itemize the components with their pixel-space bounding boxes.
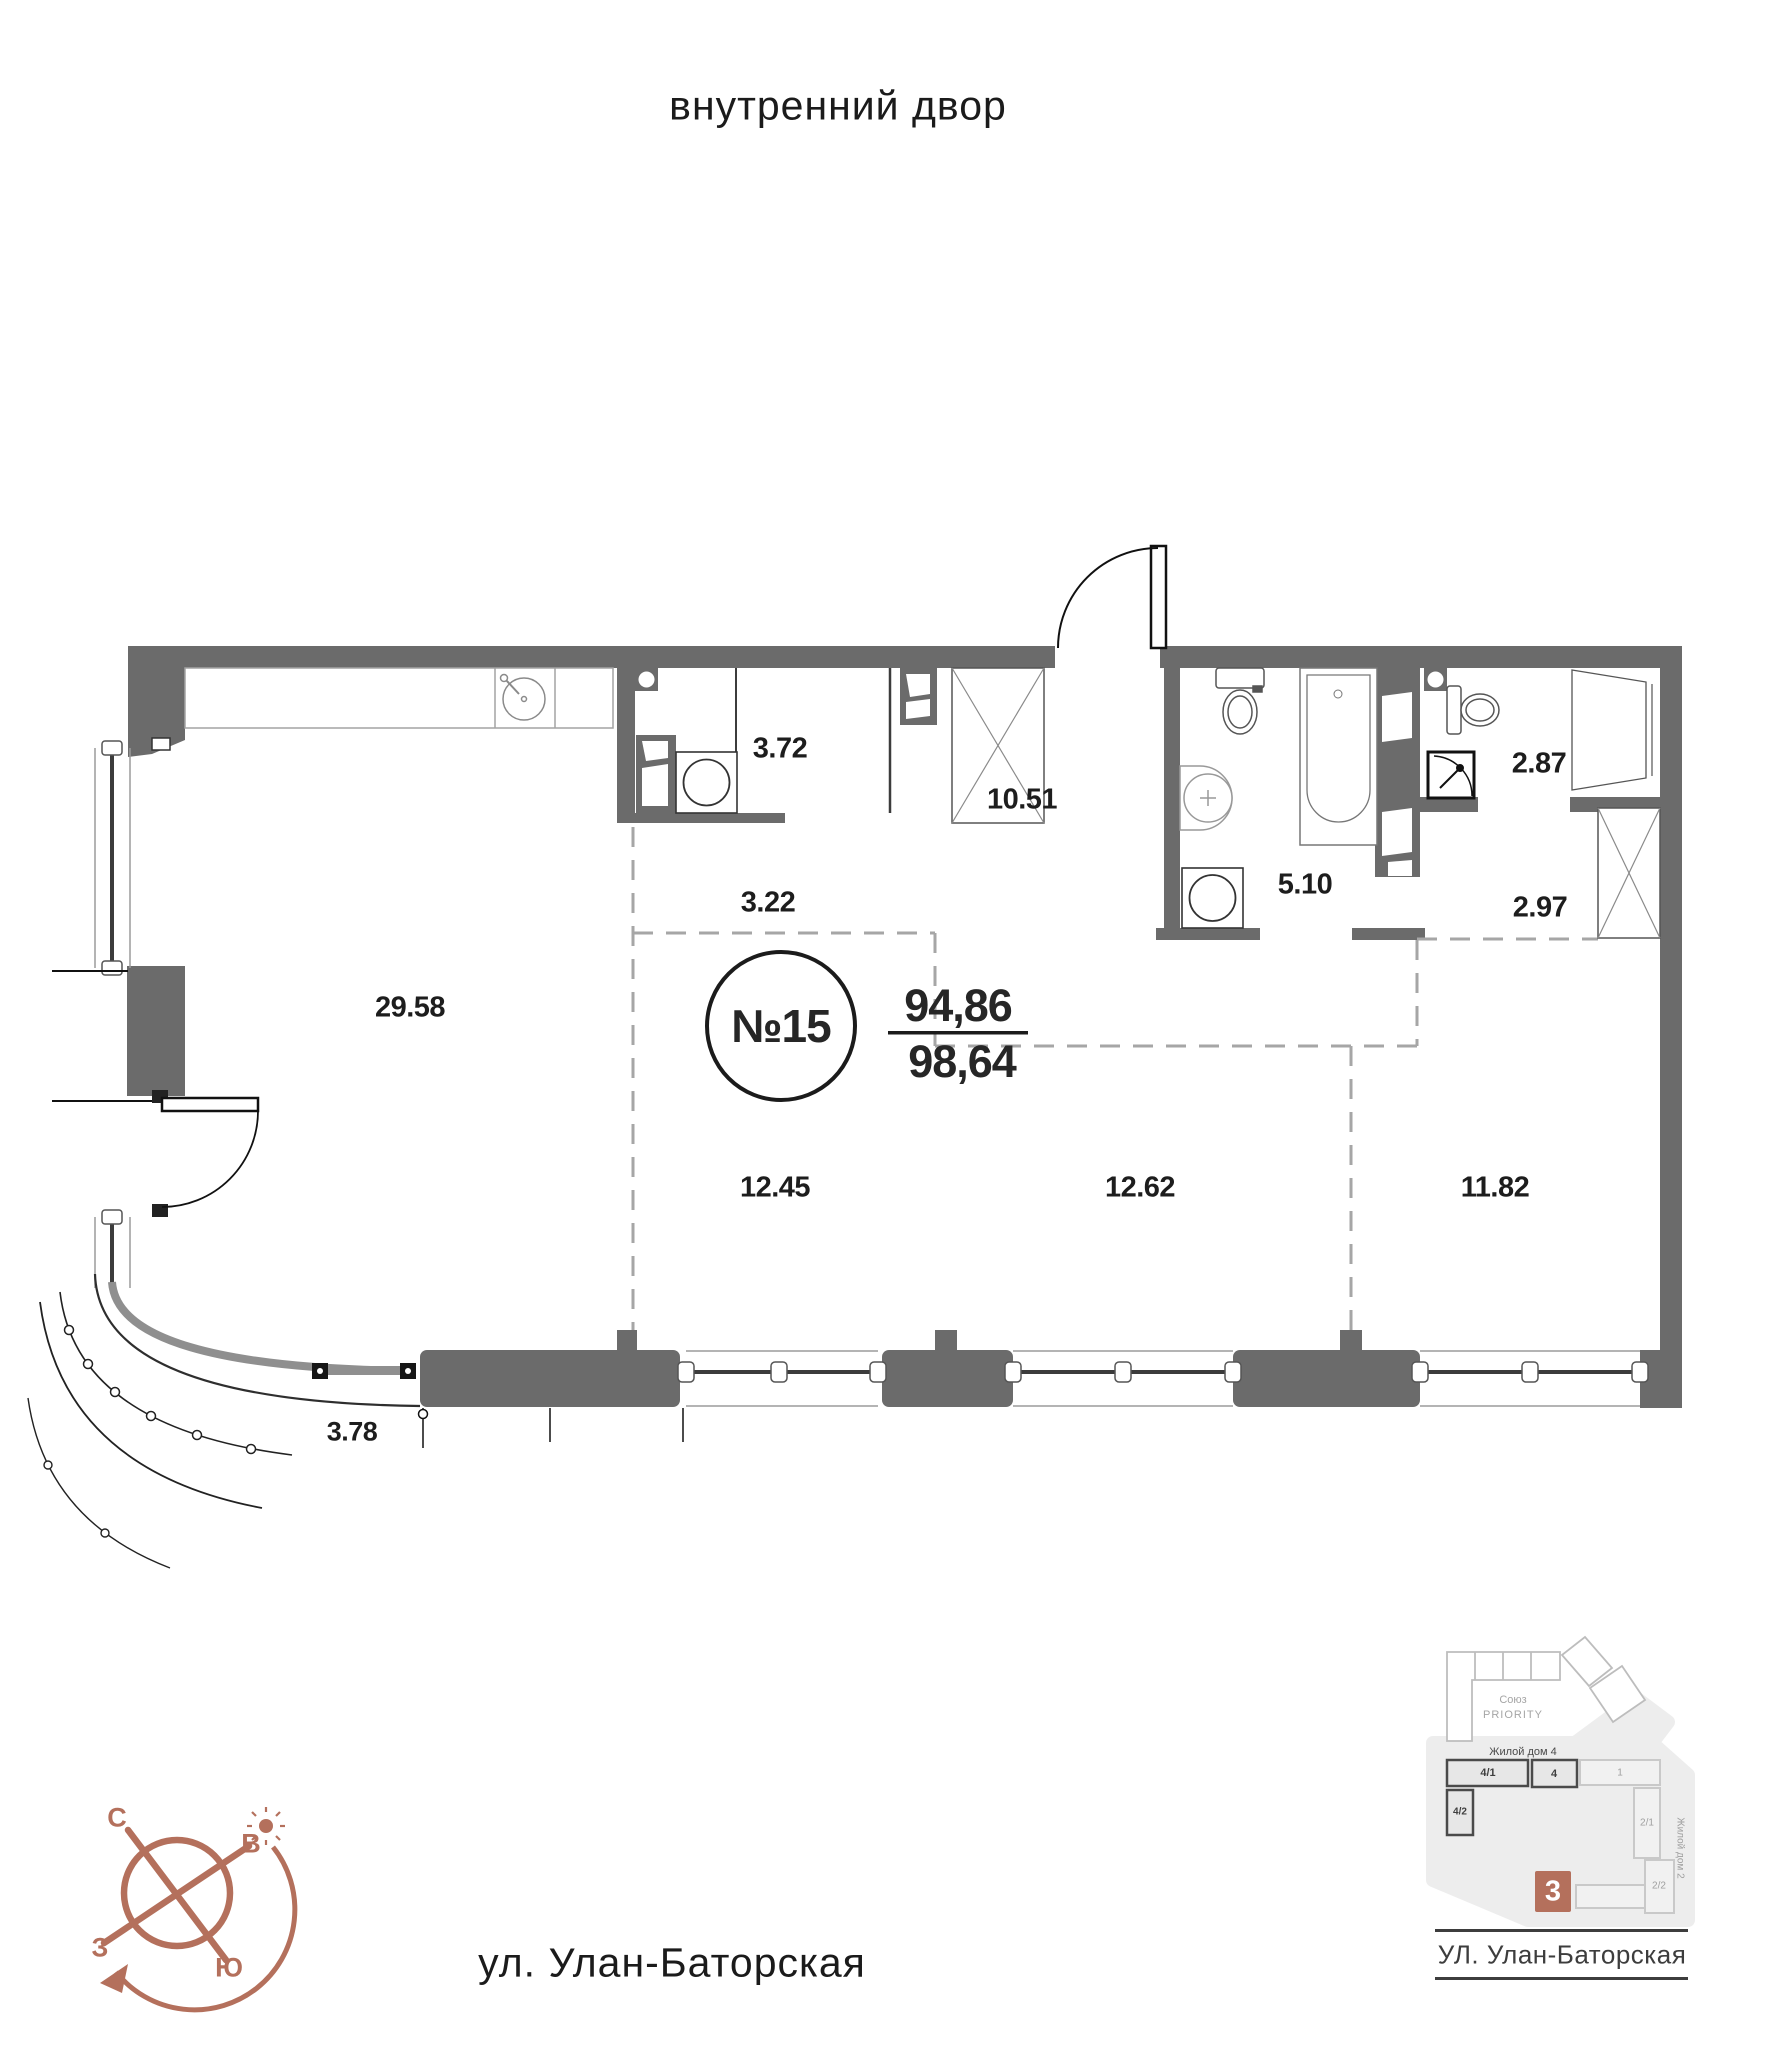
shower-icon — [1428, 752, 1474, 798]
corner-window — [1572, 670, 1652, 790]
washing-machine-2-icon — [1182, 868, 1243, 928]
room-area-bedroom-1: 12.45 — [740, 1172, 810, 1205]
room-area-corridor-b: 2.97 — [1513, 892, 1567, 925]
minimap-complex-line2: PRIORITY — [1483, 1709, 1543, 1721]
minimap-street-label: УЛ. Улан-Баторская — [1438, 1940, 1687, 1971]
room-area-storage: 3.72 — [753, 733, 807, 766]
railing-posts — [65, 1326, 256, 1454]
street-label: ул. Улан-Баторская — [478, 1940, 866, 1987]
room-area-living: 29.58 — [375, 992, 445, 1025]
room-area-bedroom-3: 11.82 — [1461, 1172, 1529, 1205]
room-area-balcony: 3.78 — [327, 1417, 378, 1448]
minimap-block-4: 4 — [1551, 1768, 1557, 1780]
minimap-current-block: 3 — [1545, 1876, 1561, 1909]
room-area-bedroom-2: 12.62 — [1105, 1172, 1175, 1205]
south-windows — [678, 1351, 1648, 1406]
balcony-door — [152, 1090, 258, 1217]
room-area-wc: 2.87 — [1512, 748, 1566, 781]
minimap-complex-line1: Союз — [1499, 1694, 1526, 1706]
minimap-block-1: 1 — [1617, 1768, 1623, 1779]
minimap-building2-label: Жилой дом 2 — [1675, 1817, 1686, 1878]
sink-icon — [1180, 766, 1232, 830]
room-area-bathroom: 5.10 — [1278, 869, 1332, 902]
compass-north-label: С — [107, 1803, 127, 1834]
courtyard-label: внутренний двор — [669, 83, 1007, 130]
minimap-building4-label: Жилой дом 4 — [1489, 1746, 1556, 1758]
room-area-hall: 10.51 — [987, 784, 1057, 817]
minimap — [1433, 1637, 1688, 1980]
compass-icon — [100, 1807, 295, 2010]
room-area-corridor-a: 3.22 — [741, 887, 795, 920]
minimap-block-4-1: 4/1 — [1480, 1767, 1495, 1779]
compass-east-label: В — [241, 1829, 261, 1860]
toilet-2-icon — [1447, 686, 1499, 734]
floorplan-page: внутренний двор ул. Улан-Баторская №15 9… — [0, 0, 1773, 2068]
minimap-block-4-2: 4/2 — [1453, 1807, 1467, 1818]
arrow-head — [100, 1964, 128, 1993]
unit-area-living: 94,86 — [904, 980, 1012, 1032]
washing-machine-icon — [676, 752, 737, 813]
corridor-wardrobe-icon — [1598, 808, 1660, 938]
unit-number: №15 — [731, 999, 830, 1053]
bathtub-icon — [1300, 668, 1377, 845]
minimap-block-2-2: 2/2 — [1652, 1881, 1666, 1892]
minimap-block-2-1: 2/1 — [1640, 1818, 1654, 1829]
compass-west-label: З — [92, 1933, 109, 1964]
unit-area-total: 98,64 — [908, 1036, 1016, 1088]
toilet-icon — [1216, 668, 1264, 734]
entry-door — [1058, 546, 1166, 648]
kitchen-counter — [185, 668, 613, 728]
compass-south-label: Ю — [215, 1953, 243, 1984]
storage-room — [676, 668, 737, 813]
